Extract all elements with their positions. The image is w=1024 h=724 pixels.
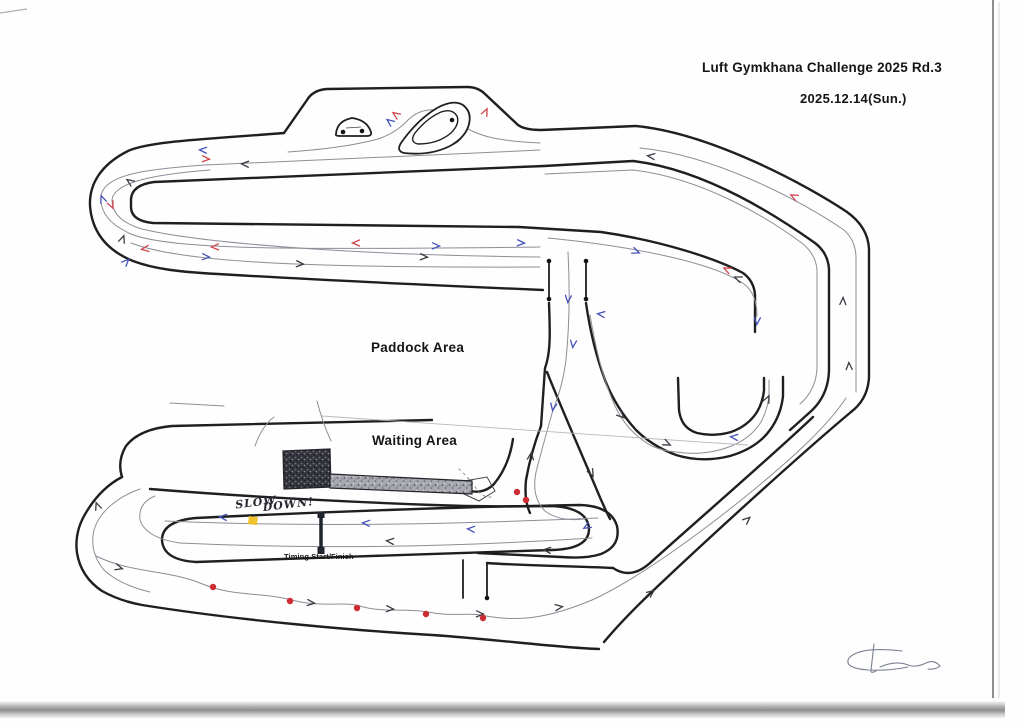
paddock-area-label: Paddock Area [371,340,464,355]
direction-arrows [93,107,852,617]
waiting-block-bar [330,474,472,494]
scan-artifacts [0,0,1005,718]
corner-marker-dots [341,118,589,601]
waiting-area-blocks [283,449,472,494]
map-title: Luft Gymkhana Challenge 2025 Rd.3 [702,60,942,75]
track-map [0,0,1024,724]
map-date: 2025.12.14(Sun.) [800,91,907,106]
timing-start-finish-label: Timing Start/Finish [284,552,354,561]
signature [848,644,940,672]
scanned-course-map-page: Luft Gymkhana Challenge 2025 Rd.3 2025.1… [0,0,1024,724]
car-island-drawings [336,103,470,154]
waiting-area-label: Waiting Area [372,433,457,448]
waiting-block-dark [283,449,331,489]
racing-lines [93,110,856,619]
